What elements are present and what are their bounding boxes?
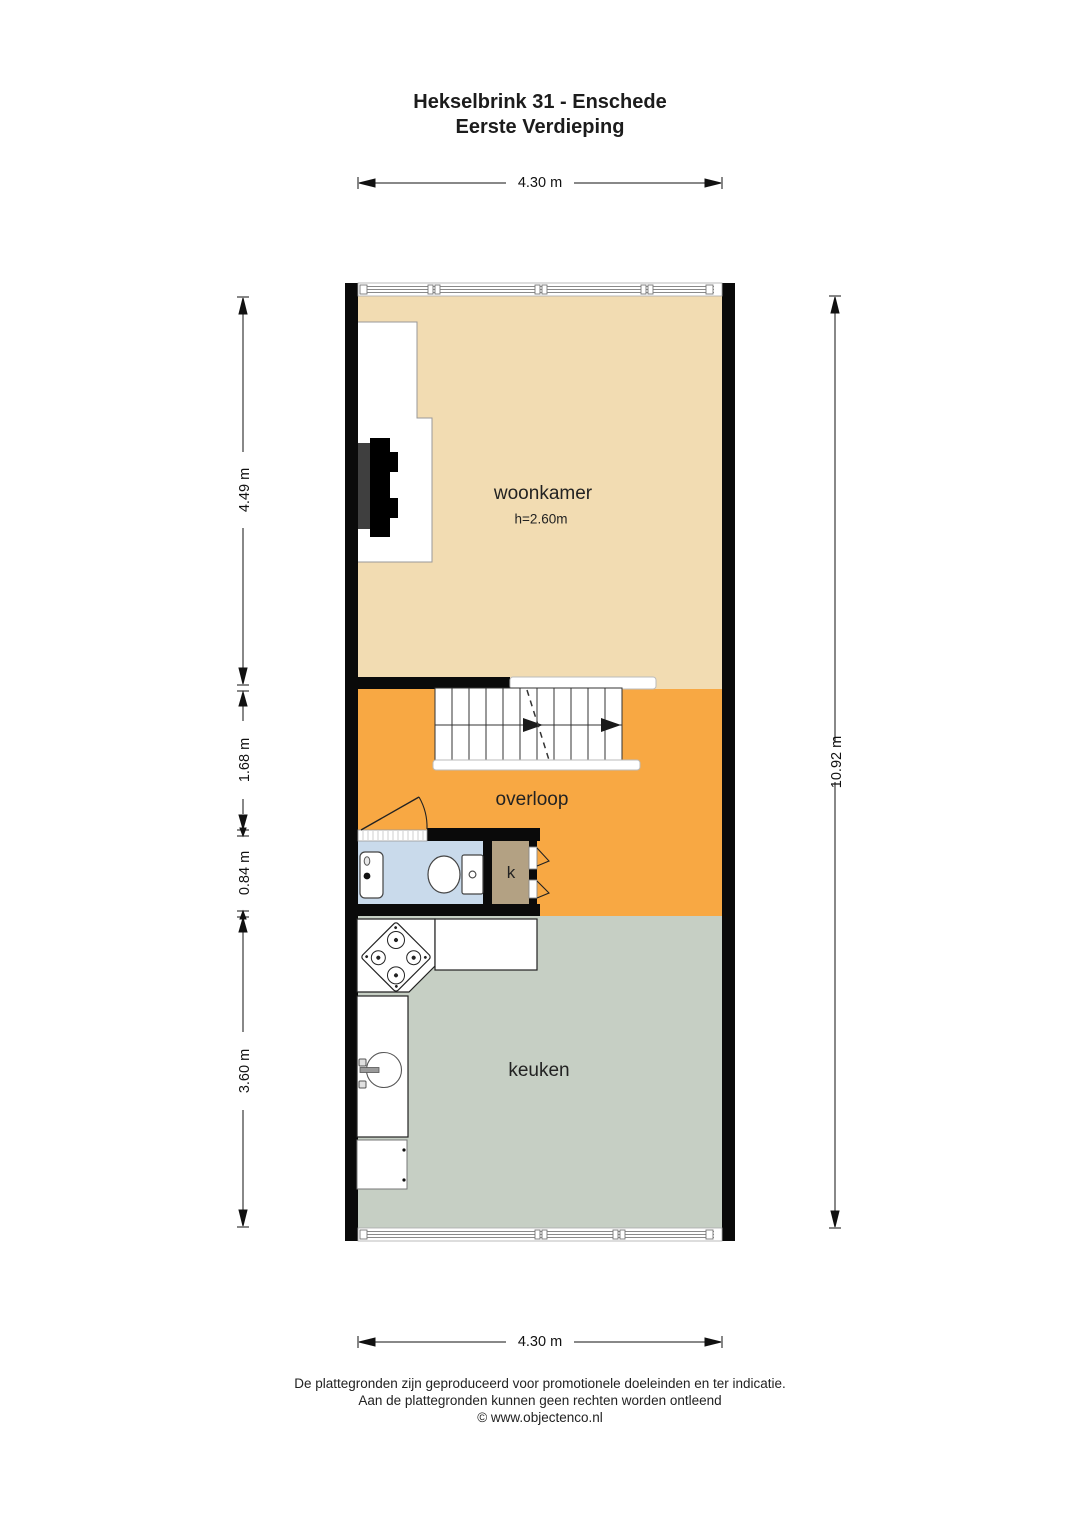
wall-left: [345, 283, 358, 1241]
window-band-top: [358, 283, 722, 296]
floorplan-page: Hekselbrink 31 - Enschede Eerste Verdiep…: [0, 0, 1080, 1527]
disclaimer-line2: Aan de plattegronden kunnen geen rechten…: [0, 1392, 1080, 1409]
sink-icon: [360, 852, 383, 898]
stair-bottom-ledge: [433, 760, 640, 770]
room-label-woonkamer: woonkamer: [494, 483, 592, 505]
stair-top-ledge: [510, 677, 656, 689]
room-ceiling-height: h=2.60m: [515, 512, 568, 527]
dim-label-left-2: 1.68 m: [237, 738, 253, 782]
closet-door: [529, 847, 537, 869]
closet-door: [529, 880, 537, 898]
chimney-flue: [358, 443, 370, 529]
dim-label-left-1: 4.49 m: [237, 468, 253, 512]
window-band-bottom: [358, 1228, 722, 1241]
dim-label-left-4: 3.60 m: [237, 1049, 253, 1093]
toilet-icon: [428, 855, 483, 894]
floorplan-drawing: [0, 0, 1080, 1527]
dim-label-right: 10.92 m: [829, 736, 845, 788]
staircase: [435, 688, 622, 762]
disclaimer: De plattegronden zijn geproduceerd voor …: [0, 1375, 1080, 1426]
room-label-keuken: keuken: [508, 1060, 569, 1082]
cabinet: [357, 1140, 407, 1189]
counter-top: [435, 919, 537, 970]
room-label-overloop: overloop: [496, 789, 569, 811]
wall-right: [722, 283, 735, 1241]
wall-stair-left: [358, 677, 510, 689]
dim-label-top: 4.30 m: [518, 175, 562, 191]
copyright: © www.objectenco.nl: [0, 1409, 1080, 1426]
dim-label-left-3: 0.84 m: [237, 851, 253, 895]
dim-label-bottom: 4.30 m: [518, 1334, 562, 1350]
disclaimer-line1: De plattegronden zijn geproduceerd voor …: [0, 1375, 1080, 1392]
room-label-kast: k: [507, 863, 516, 883]
